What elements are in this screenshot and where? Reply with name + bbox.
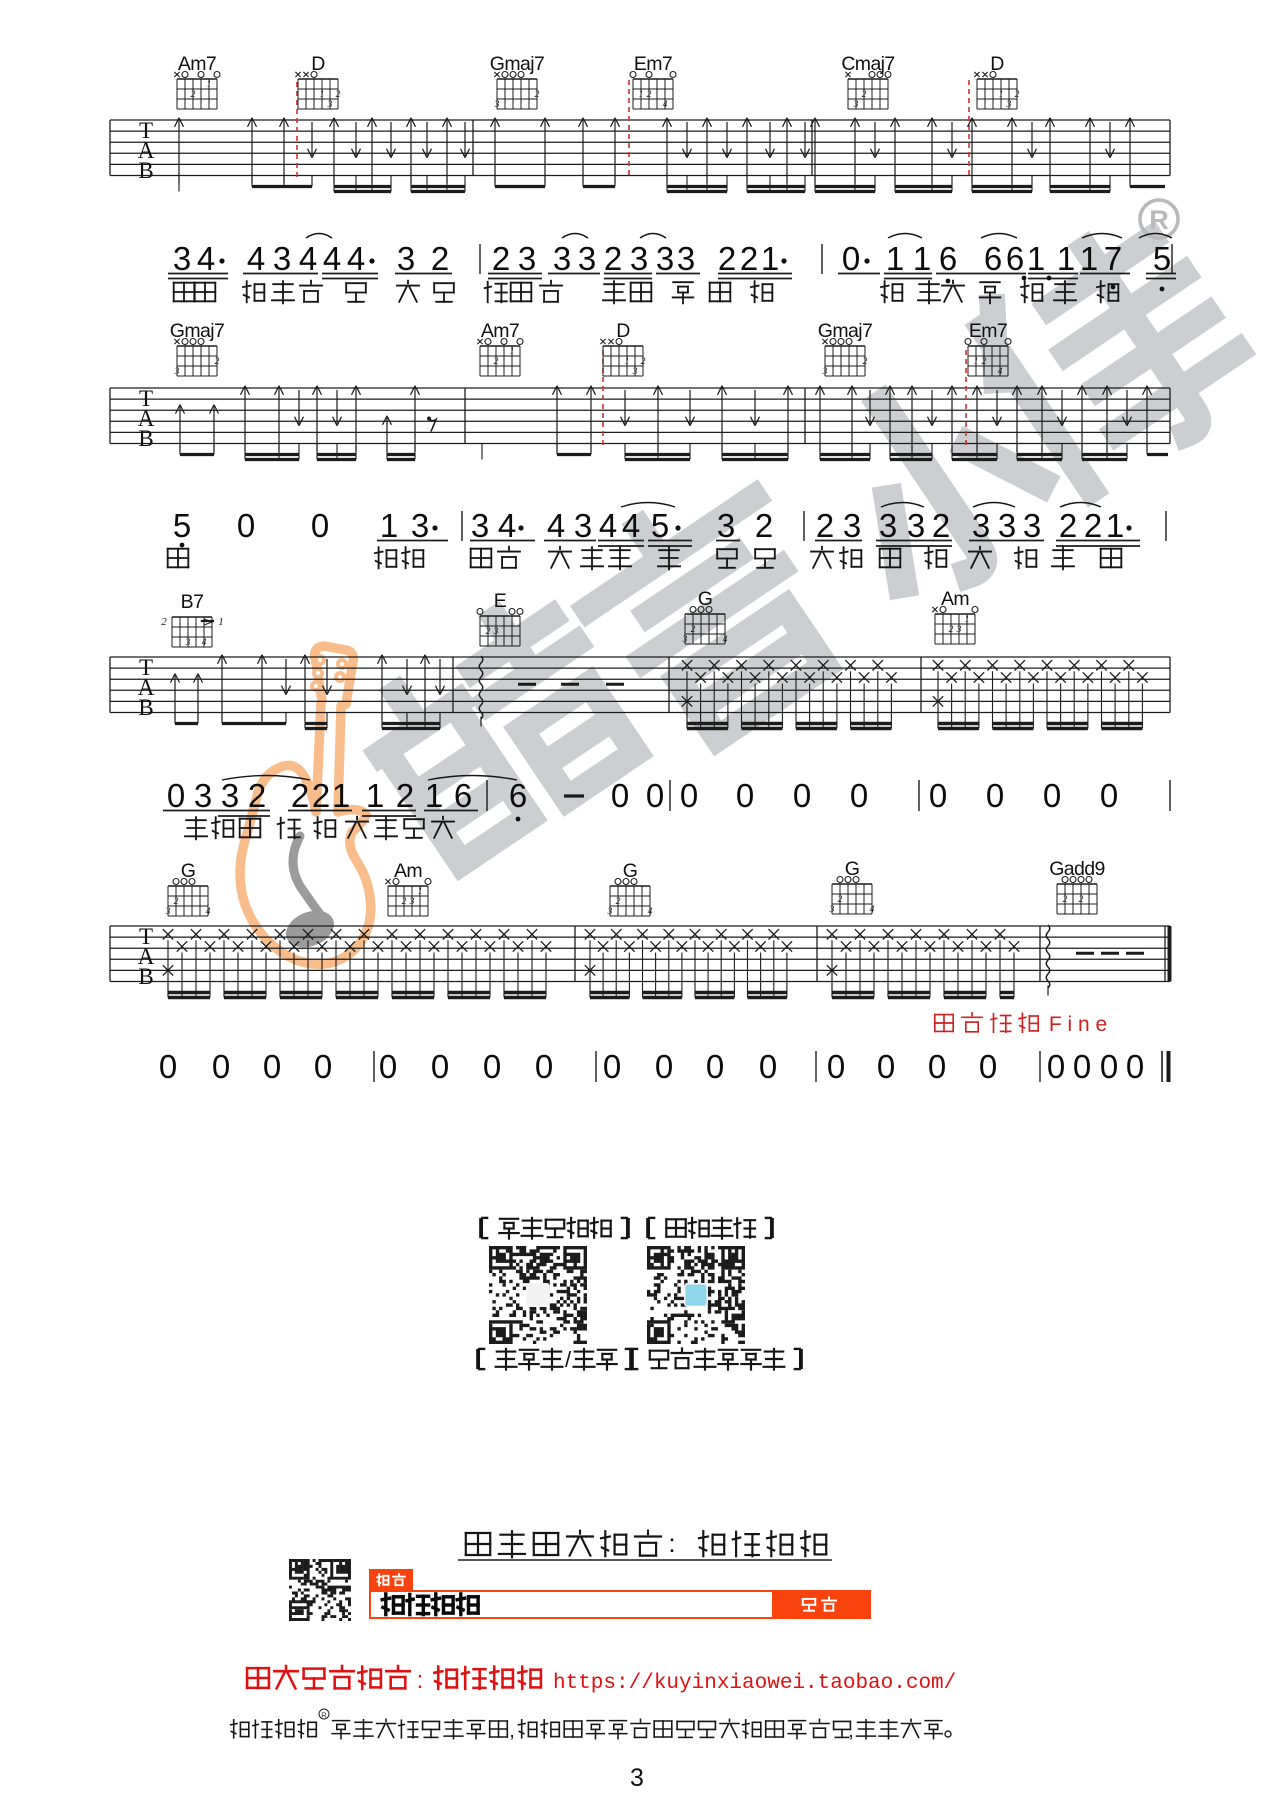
- svg-text:3: 3: [411, 507, 429, 544]
- svg-text:1: 1: [625, 357, 630, 367]
- svg-text:4: 4: [547, 507, 565, 544]
- svg-text:Em7: Em7: [969, 320, 1007, 342]
- svg-text:2: 2: [755, 507, 773, 544]
- svg-text:Gmaj7: Gmaj7: [818, 320, 872, 342]
- svg-text:0: 0: [212, 1048, 230, 1085]
- svg-text:0: 0: [646, 777, 664, 814]
- svg-text:2: 2: [215, 357, 220, 367]
- svg-text:3: 3: [829, 905, 835, 915]
- svg-text:0: 0: [431, 1048, 449, 1085]
- svg-text:2: 2: [863, 357, 868, 367]
- svg-text:3: 3: [998, 507, 1016, 544]
- svg-text:1: 1: [510, 347, 515, 357]
- svg-text:4: 4: [206, 907, 211, 917]
- svg-text:2: 2: [932, 507, 950, 544]
- svg-text:B: B: [138, 695, 153, 720]
- svg-text:3: 3: [494, 100, 500, 110]
- svg-text:4: 4: [663, 100, 668, 110]
- svg-text:0: 0: [311, 507, 329, 544]
- svg-text:E: E: [494, 590, 507, 612]
- svg-text:0: 0: [603, 1048, 621, 1085]
- svg-text:1: 1: [1106, 507, 1124, 544]
- svg-text:3: 3: [853, 100, 859, 110]
- svg-text:2: 2: [616, 897, 621, 907]
- svg-text:3: 3: [677, 240, 695, 277]
- svg-text:0: 0: [706, 1048, 724, 1085]
- svg-text:4: 4: [648, 907, 653, 917]
- svg-text:B: B: [138, 426, 153, 451]
- svg-text:0: 0: [379, 1048, 397, 1085]
- svg-text:6: 6: [454, 777, 472, 814]
- svg-text:3: 3: [717, 507, 735, 544]
- svg-text:2: 2: [1084, 507, 1102, 544]
- svg-text:2: 2: [838, 895, 843, 905]
- svg-text:2: 2: [535, 90, 540, 100]
- svg-text:2: 2: [191, 90, 196, 100]
- svg-text:1: 1: [425, 777, 443, 814]
- svg-text:3: 3: [471, 507, 489, 544]
- svg-text:3: 3: [409, 897, 415, 907]
- svg-text:6: 6: [939, 240, 957, 277]
- svg-text:3: 3: [843, 507, 861, 544]
- svg-text:2: 2: [494, 357, 499, 367]
- svg-text:0: 0: [736, 777, 754, 814]
- svg-text:1: 1: [332, 777, 350, 814]
- svg-text:0: 0: [877, 1048, 895, 1085]
- svg-text:2: 2: [862, 90, 867, 100]
- svg-text:3: 3: [574, 507, 592, 544]
- svg-text:3: 3: [173, 240, 191, 277]
- svg-text:0: 0: [850, 777, 868, 814]
- svg-text:2: 2: [248, 777, 266, 814]
- svg-text:4: 4: [299, 240, 317, 277]
- svg-text:1: 1: [974, 357, 979, 367]
- svg-text:3: 3: [656, 240, 674, 277]
- svg-text:6: 6: [984, 240, 1002, 277]
- svg-text:3: 3: [165, 907, 171, 917]
- svg-text:0: 0: [986, 777, 1004, 814]
- svg-text:3: 3: [553, 240, 571, 277]
- svg-text:2: 2: [740, 240, 758, 277]
- svg-text:2: 2: [431, 240, 449, 277]
- svg-text:2: 2: [1063, 895, 1068, 905]
- svg-text:0: 0: [1043, 777, 1061, 814]
- svg-text:B7: B7: [181, 591, 204, 613]
- svg-text:0: 0: [759, 1048, 777, 1085]
- svg-text:2: 2: [161, 616, 167, 628]
- svg-text:2: 2: [486, 627, 491, 637]
- svg-text:1: 1: [207, 80, 212, 90]
- svg-text:Gmaj7: Gmaj7: [490, 53, 544, 75]
- svg-text:3: 3: [578, 240, 596, 277]
- svg-text:0: 0: [159, 1048, 177, 1085]
- svg-text::: :: [668, 1528, 675, 1558]
- svg-text:2: 2: [641, 357, 646, 367]
- svg-text:1: 1: [1057, 240, 1075, 277]
- svg-text:R: R: [321, 1711, 327, 1720]
- svg-text:0: 0: [263, 1048, 281, 1085]
- svg-text:2: 2: [336, 90, 341, 100]
- svg-text:3: 3: [682, 635, 688, 645]
- svg-text:1: 1: [380, 507, 398, 544]
- svg-text:4: 4: [247, 240, 265, 277]
- svg-text:2: 2: [816, 507, 834, 544]
- svg-text:2: 2: [312, 777, 330, 814]
- svg-text:3: 3: [327, 100, 333, 110]
- svg-text:4: 4: [197, 240, 215, 277]
- svg-text:Em7: Em7: [634, 53, 672, 75]
- svg-text:0: 0: [483, 1048, 501, 1085]
- svg-text:1: 1: [366, 777, 384, 814]
- svg-text:2: 2: [402, 897, 407, 907]
- svg-text:3: 3: [1023, 507, 1041, 544]
- svg-text:0: 0: [1073, 1048, 1091, 1085]
- svg-text:2: 2: [291, 777, 309, 814]
- svg-text:0: 0: [655, 1048, 673, 1085]
- svg-text:2: 2: [1015, 90, 1020, 100]
- svg-text:4: 4: [498, 507, 516, 544]
- svg-text:3: 3: [630, 240, 648, 277]
- svg-text:2: 2: [949, 625, 954, 635]
- svg-text:5: 5: [1153, 240, 1171, 277]
- svg-text:0: 0: [842, 240, 860, 277]
- svg-text:0: 0: [1047, 1048, 1065, 1085]
- svg-text:5: 5: [173, 507, 191, 544]
- svg-text:2: 2: [1059, 507, 1077, 544]
- svg-text:3: 3: [607, 907, 613, 917]
- svg-text:1: 1: [886, 240, 904, 277]
- svg-text:6: 6: [1006, 240, 1024, 277]
- svg-text:1: 1: [1027, 240, 1045, 277]
- svg-text:0: 0: [793, 777, 811, 814]
- svg-text:3: 3: [879, 507, 897, 544]
- svg-text:4: 4: [347, 240, 365, 277]
- svg-text:2: 2: [604, 240, 622, 277]
- svg-text:0: 0: [1100, 1048, 1118, 1085]
- svg-text:0: 0: [979, 1048, 997, 1085]
- svg-text:3: 3: [174, 367, 180, 377]
- svg-text:,: ,: [509, 1721, 514, 1742]
- svg-text:4: 4: [599, 507, 617, 544]
- svg-text:0: 0: [1126, 1048, 1144, 1085]
- svg-text:3: 3: [185, 638, 191, 648]
- svg-text:3: 3: [493, 627, 499, 637]
- svg-text:3: 3: [194, 777, 212, 814]
- svg-text:3: 3: [972, 507, 990, 544]
- svg-text:0: 0: [680, 777, 698, 814]
- svg-text:1: 1: [965, 615, 970, 625]
- svg-text:,: ,: [848, 1721, 853, 1742]
- svg-text:0: 0: [314, 1048, 332, 1085]
- svg-text:1: 1: [218, 616, 224, 628]
- svg-text:3: 3: [518, 240, 536, 277]
- svg-text:4: 4: [622, 507, 640, 544]
- svg-text:0: 0: [611, 777, 629, 814]
- svg-text:2: 2: [1079, 895, 1084, 905]
- svg-text:3: 3: [1006, 100, 1012, 110]
- svg-text:/: /: [565, 1347, 572, 1372]
- svg-text:1: 1: [761, 240, 779, 277]
- svg-text:3: 3: [630, 1764, 644, 1792]
- svg-text:R: R: [1149, 205, 1169, 235]
- svg-text::: :: [417, 1667, 424, 1694]
- svg-text:0: 0: [827, 1048, 845, 1085]
- svg-text:4: 4: [323, 240, 341, 277]
- svg-text:0: 0: [1100, 777, 1118, 814]
- svg-text:B: B: [138, 158, 153, 183]
- svg-text:5: 5: [651, 507, 669, 544]
- svg-text:4: 4: [998, 367, 1003, 377]
- svg-text:4: 4: [870, 905, 875, 915]
- svg-text:2: 2: [492, 240, 510, 277]
- svg-text:1: 1: [418, 887, 423, 897]
- svg-text:B: B: [138, 964, 153, 989]
- svg-text:1: 1: [639, 90, 644, 100]
- svg-text:3: 3: [956, 625, 962, 635]
- svg-text:3: 3: [221, 777, 239, 814]
- svg-text:1: 1: [913, 240, 931, 277]
- svg-text:2: 2: [174, 897, 179, 907]
- svg-text:1: 1: [1080, 240, 1098, 277]
- svg-text:Gadd9: Gadd9: [1049, 858, 1105, 880]
- svg-text:0: 0: [237, 507, 255, 544]
- svg-text:2: 2: [396, 777, 414, 814]
- svg-text:0: 0: [167, 777, 185, 814]
- svg-text:3: 3: [397, 240, 415, 277]
- svg-text:7: 7: [1104, 240, 1122, 277]
- svg-text:2: 2: [691, 625, 696, 635]
- svg-text:3: 3: [822, 367, 828, 377]
- svg-text:2: 2: [647, 90, 652, 100]
- svg-text:0: 0: [929, 777, 947, 814]
- svg-text:3: 3: [907, 507, 925, 544]
- svg-text:1: 1: [320, 90, 325, 100]
- svg-text:3: 3: [632, 367, 638, 377]
- svg-text:1: 1: [999, 90, 1004, 100]
- svg-text:2: 2: [718, 240, 736, 277]
- svg-text:Gmaj7: Gmaj7: [170, 320, 224, 342]
- svg-text:F i n e: F i n e: [1049, 1013, 1107, 1036]
- svg-text:4: 4: [202, 638, 207, 648]
- svg-text:4: 4: [723, 635, 728, 645]
- svg-text:https://kuyinxiaowei.taobao.co: https://kuyinxiaowei.taobao.com/: [553, 1672, 956, 1695]
- svg-text:2: 2: [982, 357, 987, 367]
- svg-text:0: 0: [928, 1048, 946, 1085]
- svg-text:6: 6: [509, 777, 527, 814]
- svg-text:0: 0: [535, 1048, 553, 1085]
- svg-text:3: 3: [273, 240, 291, 277]
